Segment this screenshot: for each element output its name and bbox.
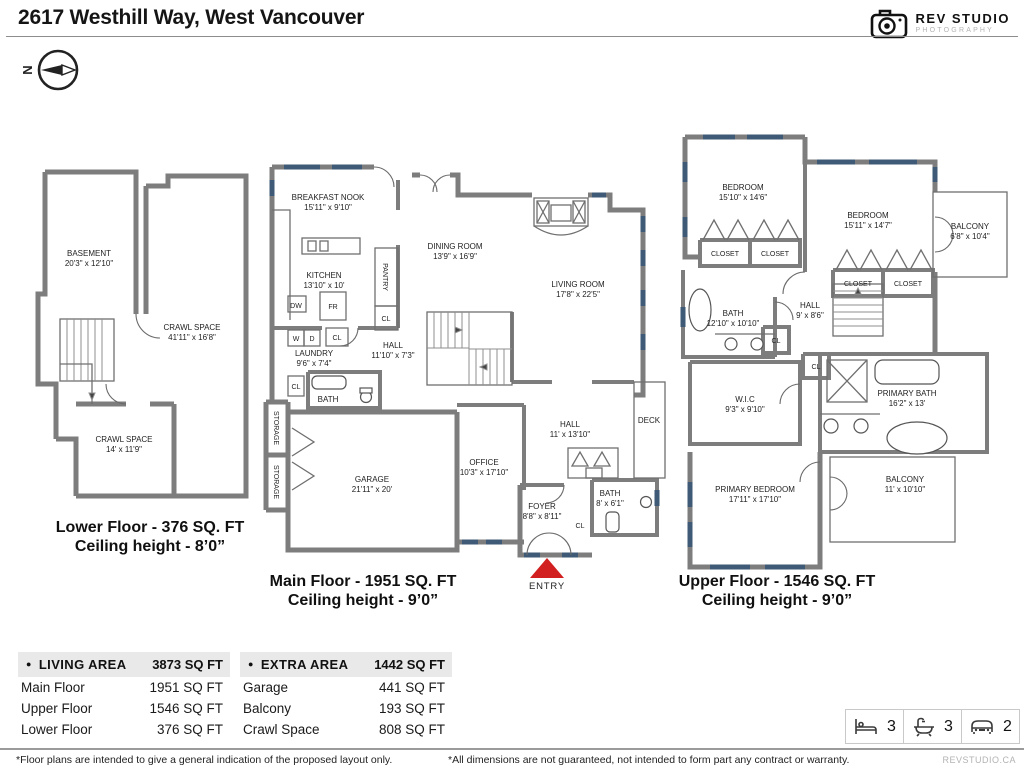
table-row: Main Floor 1951 SQ FT <box>18 677 230 698</box>
pantry-cl-label: CL <box>382 316 391 323</box>
compass-north-label: N <box>20 65 35 74</box>
camera-icon <box>870 6 910 40</box>
pantry-label: PANTRY <box>381 263 388 291</box>
crawlspace2-dims: 14' x 11'9" <box>106 445 142 454</box>
table-row: Garage 441 SQ FT <box>240 677 452 698</box>
laundry-label: LAUNDRY <box>295 349 334 358</box>
dining-room-dims: 13'9" x 16'9" <box>433 252 477 261</box>
extra-area-total: 1442 SQ FT <box>374 657 445 672</box>
compass-icon: N <box>18 46 82 94</box>
bedroom1-label: BEDROOM <box>722 183 764 192</box>
footer-disclaimer-center: *All dimensions are not guaranteed, not … <box>448 754 849 766</box>
upper-floor-caption: Upper Floor - 1546 SQ. FT Ceiling height… <box>652 572 902 610</box>
bathrooms-count: 3 <box>944 718 953 736</box>
living-area-total: 3873 SQ FT <box>152 657 223 672</box>
bullet-icon: ● <box>26 660 32 669</box>
main-floor-plan: ENTRY BREAKFAST NOOK 15'11" x 9'10" KITC… <box>262 150 667 590</box>
upper-cl1-label: CL <box>772 338 781 345</box>
laundry-dims: 9'6" x 7'4" <box>297 359 332 368</box>
closet1-label: CLOSET <box>711 251 740 258</box>
office-label: OFFICE <box>469 458 498 467</box>
table-row: Upper Floor 1546 SQ FT <box>18 698 230 719</box>
upper-cl2-label: CL <box>812 364 821 371</box>
dining-room-label: DINING ROOM <box>427 242 482 251</box>
bath2-label: BATH <box>600 489 621 498</box>
bath2-dims: 8' x 6'1" <box>596 499 624 508</box>
main-floor-caption: Main Floor - 1951 SQ. FT Ceiling height … <box>238 572 488 610</box>
laundry-cl-label: CL <box>292 384 301 391</box>
extra-area-table: ● EXTRA AREA 1442 SQ FT Garage 441 SQ FT… <box>240 652 452 740</box>
wic-dims: 9'3" x 9'10" <box>725 405 765 414</box>
living-room-label: LIVING ROOM <box>551 280 605 289</box>
hall-cl-label: CL <box>333 335 342 342</box>
balcony2-label: BALCONY <box>886 475 925 484</box>
balcony2-outline <box>830 457 955 542</box>
bath-icon <box>912 717 936 737</box>
upper-hall-dims: 9' x 8'6" <box>796 311 824 320</box>
living-room-dims: 17'8" x 22'5" <box>556 290 600 299</box>
logo-text: REV STUDIO <box>916 12 1010 25</box>
basement-label: BASEMENT <box>67 249 111 258</box>
hall1-dims: 11'10" x 7'3" <box>371 351 414 360</box>
bedroom1-dims: 15'10" x 14'6" <box>719 193 767 202</box>
lower-floor-plan: BASEMENT 20'3" x 12'10" CRAWL SPACE 41'1… <box>14 164 254 504</box>
basement-dims: 20'3" x 12'10" <box>65 259 113 268</box>
bathrooms-stat: 3 <box>903 709 962 744</box>
d-label: D <box>309 336 314 343</box>
floorplan-page: 2617 Westhill Way, West Vancouver REV ST… <box>0 0 1024 768</box>
foyer-dims: 8'8" x 8'11" <box>523 512 562 521</box>
bedroom2-label: BEDROOM <box>847 211 889 220</box>
footer-website: REVSTUDIO.CA <box>942 755 1016 765</box>
main-stairs <box>427 312 512 385</box>
hall2-label: HALL <box>560 420 581 429</box>
crawlspace1-dims: 41'11" x 16'8" <box>168 333 216 342</box>
garage-stat: 2 <box>961 709 1020 744</box>
crawlspace1-label: CRAWL SPACE <box>163 323 220 332</box>
wic-label: W.I.C <box>735 395 755 404</box>
upper-bath-label: BATH <box>723 309 744 318</box>
fr-label: FR <box>328 304 337 311</box>
table-row: Lower Floor 376 SQ FT <box>18 719 230 740</box>
upper-floor-plan: BEDROOM 15'10" x 14'6" BEDROOM 15'11" x … <box>655 122 1015 572</box>
table-row: Balcony 193 SQ FT <box>240 698 452 719</box>
property-stats: 3 3 2 <box>846 709 1020 744</box>
foyer-cl-label: CL <box>576 523 585 530</box>
breakfast-nook-dims: 15'11" x 9'10" <box>304 203 352 212</box>
garage-count: 2 <box>1003 718 1012 736</box>
kitchen-label: KITCHEN <box>306 271 341 280</box>
foyer-label: FOYER <box>528 502 556 511</box>
garage-label: GARAGE <box>355 475 389 484</box>
storage2-label: STORAGE <box>272 465 279 499</box>
entry-label: ENTRY <box>529 581 565 590</box>
footer-disclaimer-left: *Floor plans are intended to give a gene… <box>16 754 392 766</box>
page-title: 2617 Westhill Way, West Vancouver <box>18 6 364 30</box>
entry-stoop <box>568 448 618 478</box>
hall2-dims: 11' x 13'10" <box>550 430 591 439</box>
bath1-label: BATH <box>318 395 339 404</box>
lower-floor-caption: Lower Floor - 376 SQ. FT Ceiling height … <box>25 518 275 556</box>
balcony1-label: BALCONY <box>951 222 990 231</box>
office-dims: 10'3" x 17'10" <box>460 468 508 477</box>
closet-door-marks <box>703 220 932 270</box>
lower-stairs <box>60 319 114 404</box>
living-area-header: ● LIVING AREA 3873 SQ FT <box>18 652 230 677</box>
bullet-icon: ● <box>248 660 254 669</box>
table-row: Crawl Space 808 SQ FT <box>240 719 452 740</box>
kitchen-dims: 13'10" x 10' <box>303 281 345 290</box>
w-label: W <box>293 336 300 343</box>
crawlspace2-label: CRAWL SPACE <box>95 435 152 444</box>
garage-dims: 21'11" x 20' <box>352 485 393 494</box>
primary-bedroom-dims: 17'11" x 17'10" <box>729 495 781 504</box>
primary-bath-label: PRIMARY BATH <box>877 389 936 398</box>
upper-stairs <box>833 284 883 336</box>
studio-logo: REV STUDIO PHOTOGRAPHY <box>870 6 1010 40</box>
header-divider <box>6 36 1018 37</box>
bed-icon <box>853 717 879 736</box>
extra-area-header: ● EXTRA AREA 1442 SQ FT <box>240 652 452 677</box>
bedrooms-count: 3 <box>887 718 896 736</box>
fireplace <box>534 198 588 235</box>
garage-door-marks <box>292 428 314 490</box>
breakfast-nook-label: BREAKFAST NOOK <box>292 193 365 202</box>
balcony2-dims: 11' x 10'10" <box>885 485 926 494</box>
hall1-label: HALL <box>383 341 404 350</box>
bedroom2-dims: 15'11" x 14'7" <box>844 221 892 230</box>
primary-bath-dims: 16'2" x 13' <box>889 399 926 408</box>
closet4-label: CLOSET <box>894 281 923 288</box>
footer: *Floor plans are intended to give a gene… <box>0 748 1024 768</box>
upper-hall-label: HALL <box>800 301 821 310</box>
logo-subtext: PHOTOGRAPHY <box>916 27 1010 34</box>
storage1-label: STORAGE <box>272 411 279 445</box>
closet3-label: CLOSET <box>844 281 873 288</box>
upper-bath-dims: 12'10" x 10'10" <box>707 319 760 328</box>
dw-label: DW <box>290 303 302 310</box>
balcony1-dims: 6'8" x 10'4" <box>950 232 990 241</box>
entry-arrow <box>530 558 564 578</box>
car-icon <box>969 717 995 736</box>
primary-bath-fixtures <box>820 360 947 454</box>
bedrooms-stat: 3 <box>845 709 904 744</box>
closet2-label: CLOSET <box>761 251 790 258</box>
living-area-table: ● LIVING AREA 3873 SQ FT Main Floor 1951… <box>18 652 230 740</box>
primary-bedroom-label: PRIMARY BEDROOM <box>715 485 795 494</box>
